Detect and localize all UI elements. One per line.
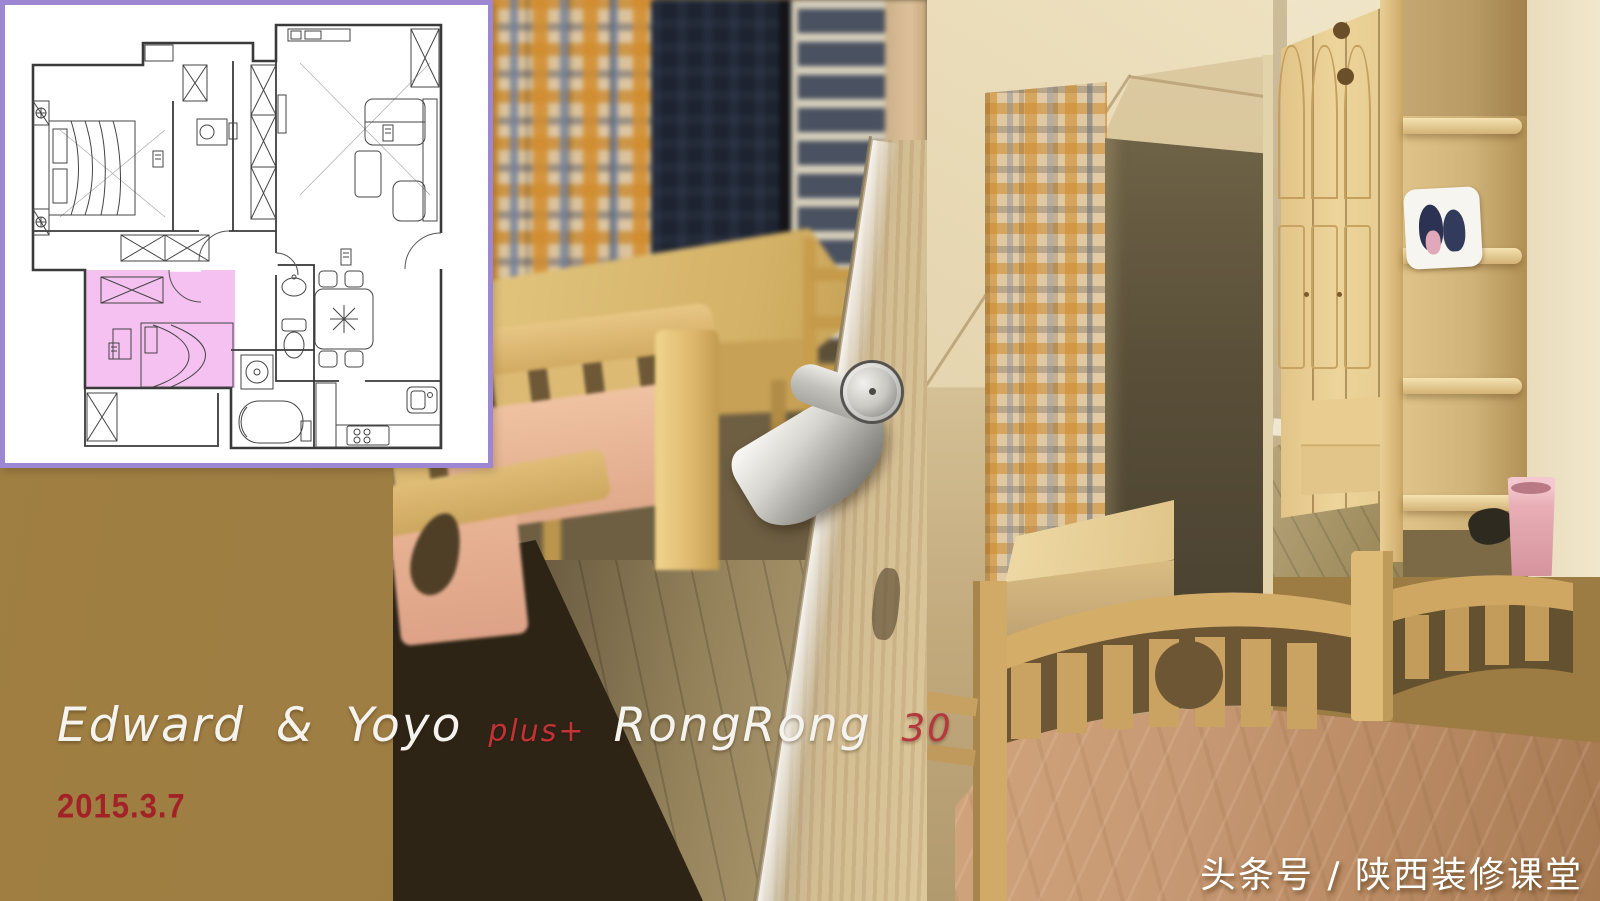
- family-photo-frame: [1403, 186, 1483, 270]
- shelf-shadow: [1403, 0, 1528, 116]
- curved-shelf-board: [1403, 378, 1522, 394]
- title-number: 30: [902, 707, 953, 750]
- photo-figure: [1425, 230, 1441, 255]
- watermark-text: 头条号 / 陕西装修课堂: [1200, 846, 1583, 898]
- ceiling-seam: [1129, 75, 1273, 99]
- photo-collage-canvas: Edward & Yoyoplus+RongRong30 2015.3.7 头条…: [0, 0, 1600, 901]
- drawer-hole-handle: [1337, 68, 1354, 85]
- drawer-hole-handle: [1333, 22, 1350, 39]
- door-knob: [1304, 292, 1309, 297]
- door-arch-panel: [1311, 45, 1338, 199]
- handle-screw: [869, 388, 876, 395]
- highlighted-room: [85, 270, 235, 388]
- floor-plan-panel: [0, 0, 493, 468]
- open-door: [723, 140, 927, 901]
- title-names: Edward & Yoyo: [57, 698, 462, 753]
- curved-shelf-board: [1403, 118, 1522, 134]
- door-arch-panel: [1278, 45, 1305, 199]
- door-lower-panel: [1344, 225, 1371, 369]
- door-lower-panel: [1311, 225, 1338, 369]
- photo-wardrobe-shelf: [1273, 0, 1600, 577]
- bed-corner-post: [655, 330, 719, 570]
- door-knob: [1337, 292, 1342, 297]
- shelf-side-panel: [1380, 0, 1403, 562]
- date-caption: 2015.3.7: [57, 786, 186, 826]
- title-caption: Edward & Yoyoplus+RongRong30: [57, 698, 953, 753]
- title-plus: plus+: [488, 714, 585, 749]
- title-second-name: RongRong: [614, 698, 872, 753]
- curved-shelf-board: [1403, 495, 1522, 511]
- floor-plan-drawing: [5, 5, 488, 463]
- photo-figure: [1442, 209, 1466, 252]
- door-lower-panel: [1278, 225, 1305, 369]
